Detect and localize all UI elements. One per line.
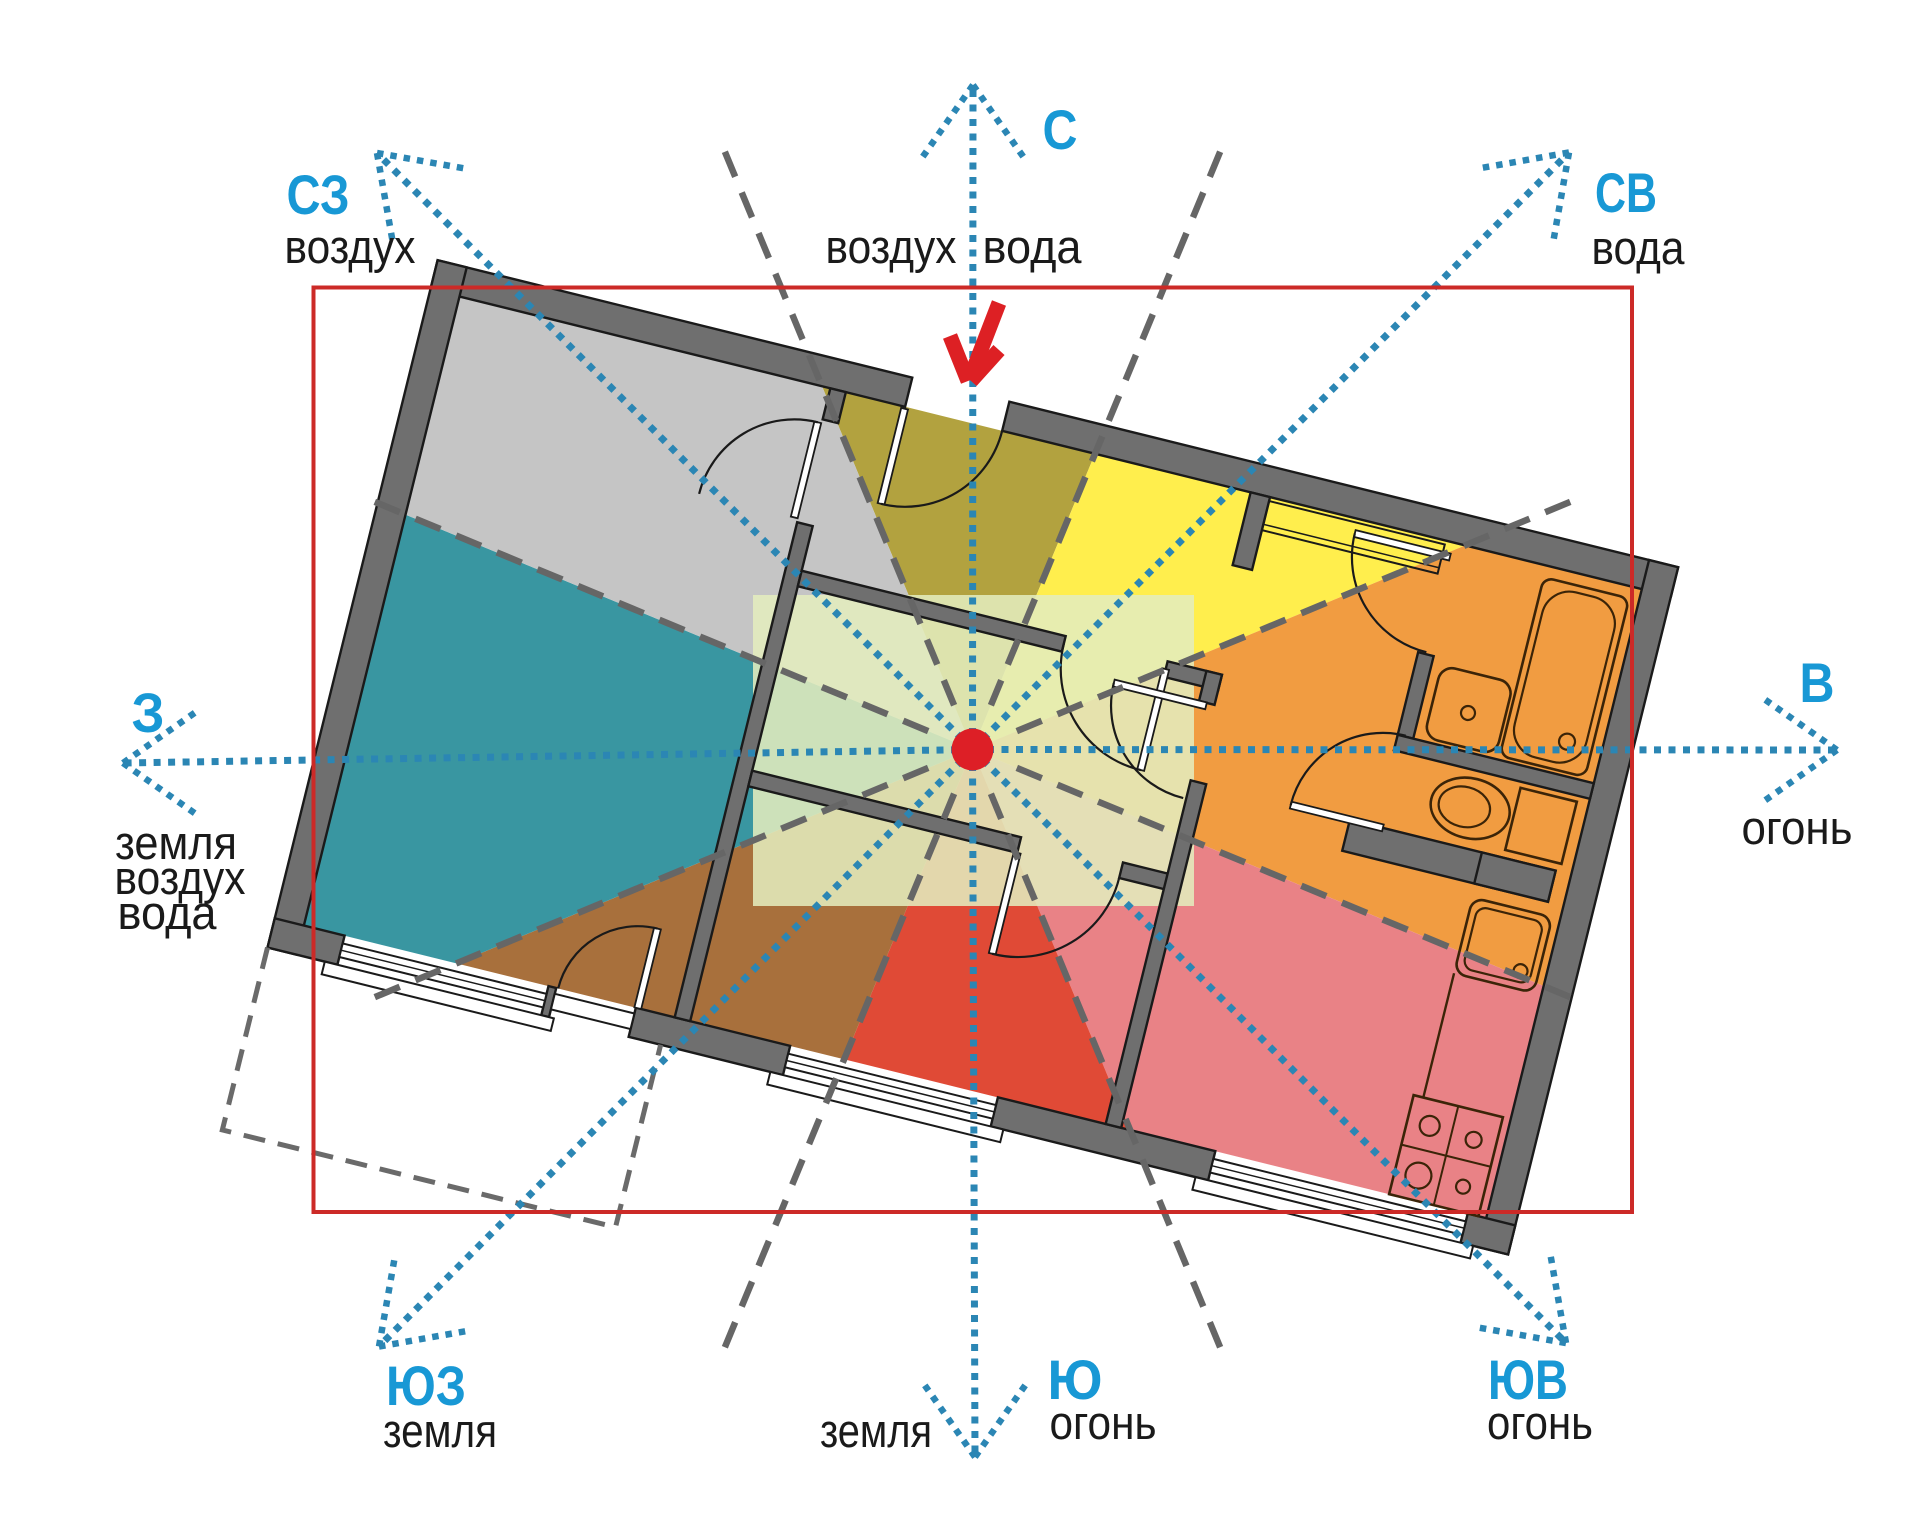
svg-text:З: З (132, 681, 165, 744)
svg-text:воздух: воздух (285, 220, 416, 273)
svg-text:С: С (1043, 98, 1078, 161)
svg-text:огонь: огонь (1050, 1396, 1157, 1449)
svg-text:вода: вода (118, 886, 218, 939)
svg-text:огонь: огонь (1487, 1396, 1593, 1449)
svg-text:воздух: воздух (826, 220, 957, 273)
svg-text:огонь: огонь (1742, 801, 1853, 854)
svg-text:СЗ: СЗ (287, 163, 350, 226)
svg-text:вода: вода (1592, 221, 1686, 274)
svg-text:земля: земля (383, 1404, 497, 1457)
svg-text:В: В (1800, 651, 1835, 714)
svg-text:вода: вода (983, 220, 1083, 273)
svg-text:СВ: СВ (1595, 161, 1657, 224)
svg-text:земля: земля (820, 1404, 932, 1457)
